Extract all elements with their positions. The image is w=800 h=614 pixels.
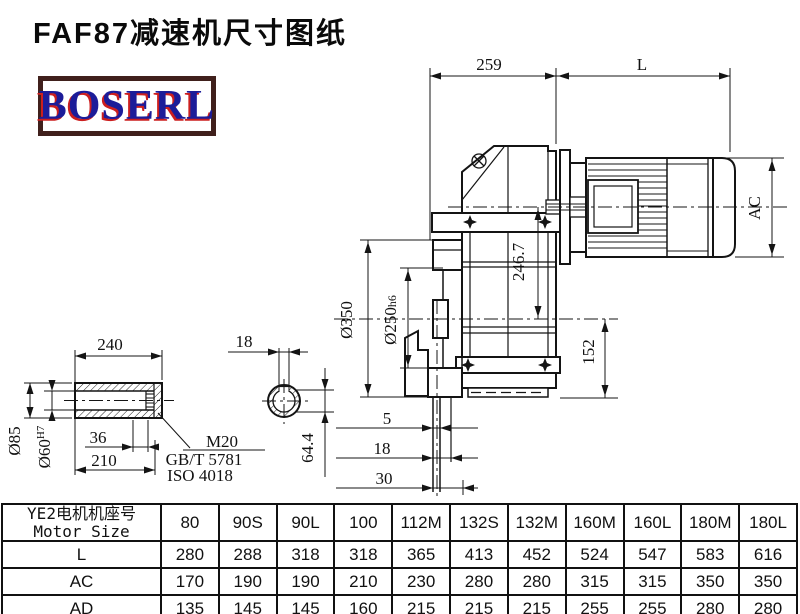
value-cell: 350	[739, 568, 797, 595]
dimension-lines	[24, 68, 784, 488]
column-header: 90S	[219, 504, 277, 541]
value-cell: 452	[508, 541, 566, 568]
value-cell: 547	[624, 541, 682, 568]
motor-size-header-cn: YE2电机机座号	[3, 505, 160, 523]
dim-shaft-bore: Ø60H7	[35, 425, 54, 468]
value-cell: 318	[277, 541, 335, 568]
value-cell: 413	[450, 541, 508, 568]
value-cell: 215	[450, 595, 508, 614]
value-cell: 230	[392, 568, 450, 595]
dim-step-30: 30	[376, 469, 393, 488]
dim-bolt-depth: 36	[90, 428, 107, 447]
value-cell: 160	[334, 595, 392, 614]
value-cell: 215	[508, 595, 566, 614]
column-header: 160L	[624, 504, 682, 541]
dim-top-width: 259	[476, 55, 502, 74]
column-header: 160M	[566, 504, 624, 541]
value-cell: 145	[219, 595, 277, 614]
column-header: 180M	[681, 504, 739, 541]
value-cell: 210	[334, 568, 392, 595]
dim-spigot-diameter: Ø250h6	[381, 295, 400, 345]
value-cell: 315	[624, 568, 682, 595]
dim-keyway-depth: 64.4	[298, 433, 317, 463]
row-label: AD	[2, 595, 161, 614]
value-cell: 280	[161, 541, 219, 568]
dim-center-height: 246.7	[509, 242, 528, 281]
column-header: 112M	[392, 504, 450, 541]
value-cell: 135	[161, 595, 219, 614]
value-cell: 215	[392, 595, 450, 614]
dim-hub-inner-length: 210	[91, 451, 117, 470]
value-cell: 524	[566, 541, 624, 568]
table-row: AD135145145160215215215255255280280	[2, 595, 797, 614]
reducer-housing	[432, 146, 560, 397]
column-header: 80	[161, 504, 219, 541]
column-header: 100	[334, 504, 392, 541]
page: FAF87减速机尺寸图纸 BOSERL	[0, 0, 800, 614]
value-cell: 350	[681, 568, 739, 595]
value-cell: 315	[566, 568, 624, 595]
motor-size-table: YE2电机机座号Motor Size8090S90L100112M132S132…	[1, 503, 798, 614]
column-header: 132S	[450, 504, 508, 541]
value-cell: 583	[681, 541, 739, 568]
dim-flange-diameter: Ø350	[337, 301, 356, 339]
value-cell: 365	[392, 541, 450, 568]
dim-shaft-to-base: 152	[579, 339, 598, 365]
column-header: 180L	[739, 504, 797, 541]
dimension-arrows	[27, 73, 776, 492]
dim-shaft-od: Ø85	[5, 426, 24, 455]
table-row: L280288318318365413452524547583616	[2, 541, 797, 568]
value-cell: 280	[681, 595, 739, 614]
dim-step-18: 18	[374, 439, 391, 458]
value-cell: 145	[277, 595, 335, 614]
value-cell: 288	[219, 541, 277, 568]
value-cell: 190	[219, 568, 277, 595]
value-cell: 255	[566, 595, 624, 614]
table-header-row: YE2电机机座号Motor Size8090S90L100112M132S132…	[2, 504, 797, 541]
dim-motor-length: L	[637, 55, 647, 74]
motor-table-body: YE2电机机座号Motor Size8090S90L100112M132S132…	[2, 504, 797, 614]
dim-hub-length: 240	[97, 335, 123, 354]
value-cell: 170	[161, 568, 219, 595]
dim-keyway-width: 18	[236, 332, 253, 351]
technical-drawing: 259 L AC 246.7 Ø350 Ø250h6 152 5 18 30 6…	[0, 0, 800, 503]
value-cell: 280	[450, 568, 508, 595]
dim-step-5: 5	[383, 409, 392, 428]
value-cell: 616	[739, 541, 797, 568]
value-cell: 280	[739, 595, 797, 614]
value-cell: 190	[277, 568, 335, 595]
table-row: AC170190190210230280280315315350350	[2, 568, 797, 595]
column-header: 132M	[508, 504, 566, 541]
value-cell: 255	[624, 595, 682, 614]
label-thread-spec: M20	[206, 432, 238, 451]
column-header: 90L	[277, 504, 335, 541]
motor-size-header: YE2电机机座号Motor Size	[2, 504, 161, 541]
value-cell: 318	[334, 541, 392, 568]
value-cell: 280	[508, 568, 566, 595]
row-label: L	[2, 541, 161, 568]
label-standard-iso: ISO 4018	[167, 466, 233, 485]
motor-size-header-en: Motor Size	[3, 523, 160, 541]
dimension-labels: 259 L AC 246.7 Ø350 Ø250h6 152 5 18 30 6…	[5, 55, 764, 488]
row-label: AC	[2, 568, 161, 595]
dim-motor-diameter: AC	[745, 196, 764, 220]
